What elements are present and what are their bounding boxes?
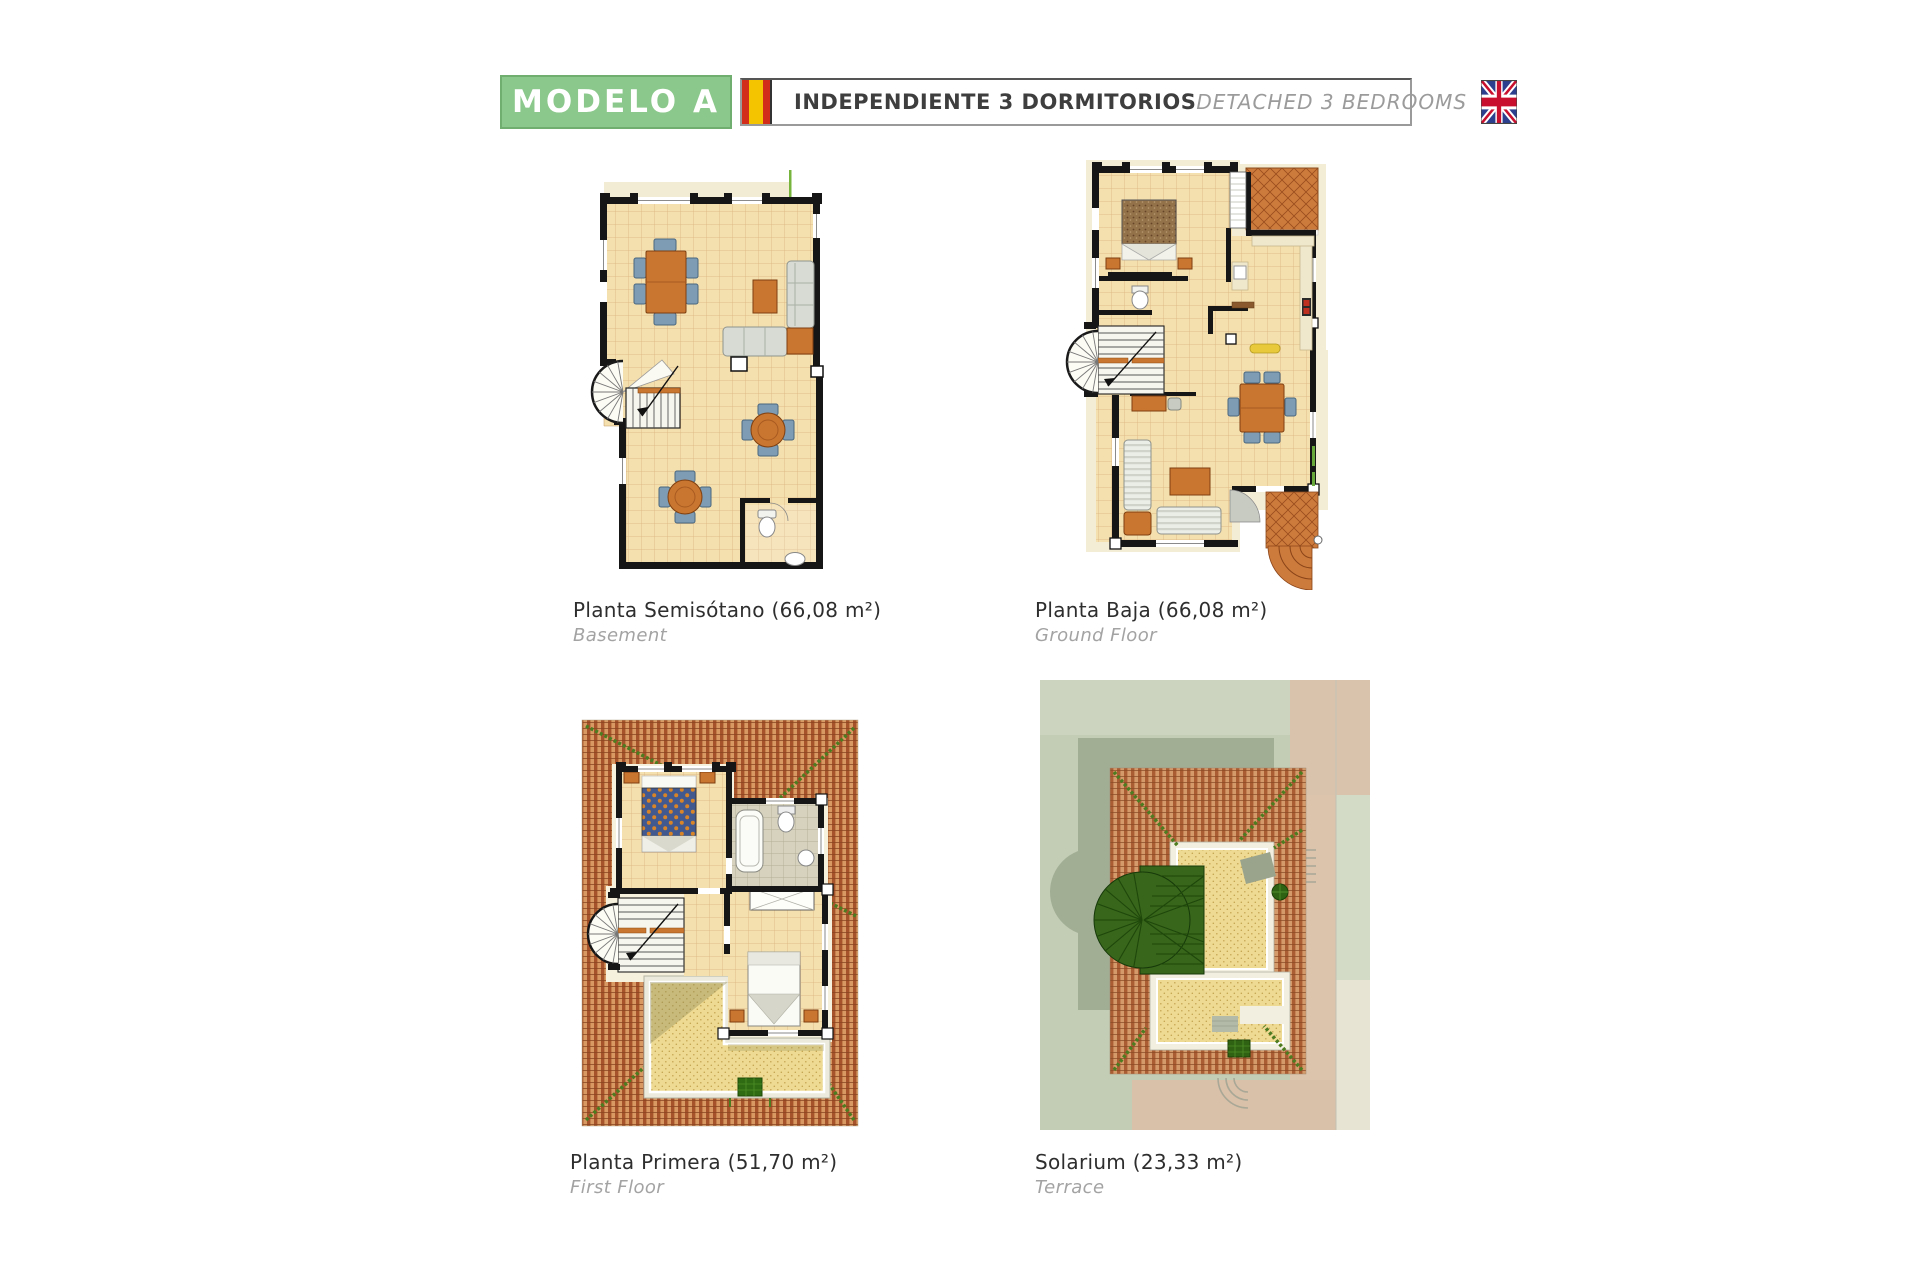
basement-drawing (590, 160, 830, 580)
uk-flag-icon (1481, 80, 1517, 124)
plan-subtitle: Ground Floor (1035, 625, 1267, 646)
bathroom (732, 804, 818, 886)
title-bar: INDEPENDIENTE 3 DORMITORIOS DETACHED 3 B… (740, 78, 1412, 126)
lower-solarium (1150, 972, 1290, 1050)
floorplan-ground-floor: Planta Baja (66,08 m²) Ground Floor (1060, 150, 1340, 590)
plan-subtitle: First Floor (570, 1177, 837, 1198)
straight-stairs (1098, 326, 1164, 394)
side-table (787, 328, 813, 354)
model-badge: MODELO A (500, 75, 732, 129)
straight-stairs (618, 898, 684, 972)
floorplan-basement: Planta Semisótano (66,08 m²) Basement (590, 160, 830, 580)
brochure-page: MODELO A INDEPENDIENTE 3 DORMITORIOS DET… (0, 0, 1920, 1280)
sofa-vertical (787, 261, 814, 328)
model-label: MODELO A (512, 84, 720, 120)
floorplan-first-floor: Planta Primera (51,70 m²) First Floor (580, 710, 860, 1130)
plan-caption: Planta Baja (66,08 m²) Ground Floor (1035, 598, 1267, 646)
plan-title: Planta Baja (66,08 m²) (1035, 598, 1267, 622)
solarium-drawing (1040, 680, 1370, 1130)
column (731, 357, 747, 371)
bathroom (1132, 286, 1148, 309)
coffee-table (753, 280, 777, 313)
title-spanish: INDEPENDIENTE 3 DORMITORIOS (794, 90, 1196, 114)
bench (1250, 344, 1280, 353)
ground-floor-drawing (1060, 150, 1340, 590)
wardrobe (1230, 172, 1246, 228)
desk (1132, 396, 1181, 411)
plan-title: Solarium (23,33 m²) (1035, 1150, 1242, 1174)
plan-subtitle: Basement (573, 625, 881, 646)
plan-subtitle: Terrace (1035, 1177, 1242, 1198)
upper-terrace (1246, 168, 1318, 230)
entry-porch (1230, 490, 1322, 590)
first-floor-drawing (580, 710, 860, 1130)
plan-caption: Planta Primera (51,70 m²) First Floor (570, 1150, 837, 1198)
fan-steps (1268, 546, 1312, 590)
hall-floor (684, 892, 728, 976)
sofa-horizontal (723, 327, 787, 356)
plan-caption: Planta Semisótano (66,08 m²) Basement (573, 598, 881, 646)
spain-flag-icon (742, 80, 772, 124)
plan-caption: Solarium (23,33 m²) Terrace (1035, 1150, 1242, 1198)
plan-title: Planta Primera (51,70 m²) (570, 1150, 837, 1174)
title-english: DETACHED 3 BEDROOMS (1196, 90, 1467, 114)
plan-title: Planta Semisótano (66,08 m²) (573, 598, 881, 622)
spiral-staircase (1067, 331, 1098, 393)
floorplan-solarium: Solarium (23,33 m²) Terrace (1040, 680, 1370, 1130)
